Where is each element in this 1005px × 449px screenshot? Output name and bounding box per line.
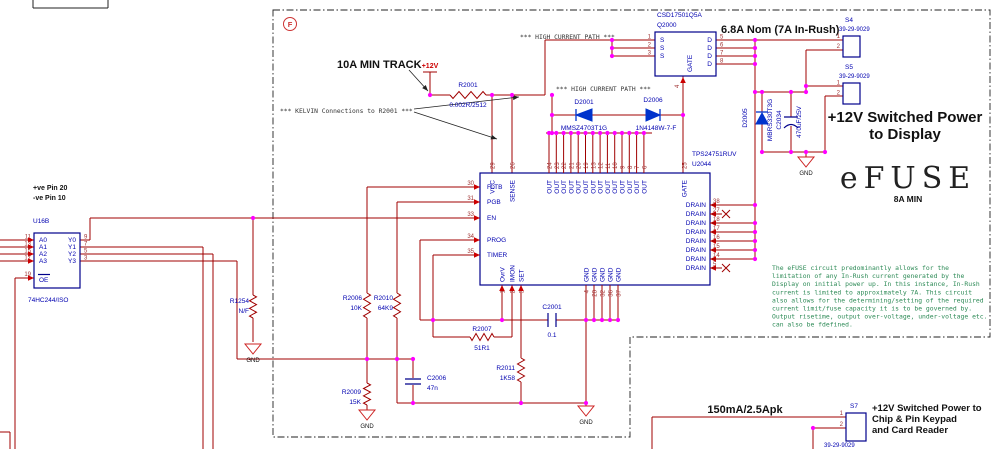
junction-dot bbox=[753, 248, 757, 252]
junction-dot bbox=[610, 38, 614, 42]
track-note: 10A MIN TRACK bbox=[337, 59, 422, 71]
pin-name: OUT bbox=[568, 180, 575, 194]
pin-name: DRAIN bbox=[686, 202, 707, 209]
pin-name: GND bbox=[600, 267, 607, 282]
junction-dot bbox=[591, 131, 595, 135]
pin-number: 11 bbox=[606, 162, 612, 169]
pin-arrow bbox=[28, 275, 34, 281]
pin-number: 23 bbox=[555, 162, 561, 169]
junction-dot bbox=[760, 150, 764, 154]
pin-name: D bbox=[707, 37, 712, 44]
border-fragment-bottom-left bbox=[0, 432, 10, 449]
s4-ref: S4 bbox=[845, 17, 853, 24]
junction-dot bbox=[519, 401, 523, 405]
schematic-canvas: F +ve Pin 20 -ve Pin 10 U16B 74HC244/ISO… bbox=[0, 0, 1005, 449]
c2006-value: 47n bbox=[427, 385, 438, 392]
s4-pin-1: 1 bbox=[837, 34, 841, 40]
r2011-value: 1K58 bbox=[500, 375, 516, 382]
pin-number: 26 bbox=[511, 162, 517, 169]
junction-dot bbox=[804, 84, 808, 88]
pin-name: OE bbox=[39, 277, 49, 284]
no-connect-x bbox=[722, 210, 730, 218]
pin-name: DRAIN bbox=[686, 238, 707, 245]
junction-dot bbox=[428, 93, 432, 97]
junction-dot bbox=[600, 318, 604, 322]
junction-dot bbox=[365, 357, 369, 361]
r2001-body[interactable] bbox=[450, 92, 486, 99]
junction-dot bbox=[500, 318, 504, 322]
s4-part: 39-29-9029 bbox=[839, 27, 870, 33]
pin-name: OUT bbox=[612, 180, 619, 194]
note-line: can also be fdefined. bbox=[772, 321, 853, 329]
pin-arrow bbox=[474, 199, 480, 205]
r2007-body[interactable] bbox=[470, 334, 494, 341]
power-display-title-2: to Display bbox=[869, 126, 941, 143]
junction-dot bbox=[584, 401, 588, 405]
pin-name: OUT bbox=[634, 180, 641, 194]
pin-number: 12 bbox=[599, 162, 605, 169]
pin-number: 30 bbox=[467, 181, 474, 187]
gnd-label: GND bbox=[360, 424, 374, 430]
junction-dot bbox=[431, 318, 435, 322]
s7-pin-2: 2 bbox=[840, 422, 844, 428]
junction-dot bbox=[642, 131, 646, 135]
pin-name: D bbox=[707, 45, 712, 52]
pin-number: 28 bbox=[593, 289, 599, 296]
pin-arrow bbox=[474, 252, 480, 258]
d2005-value: MBRS330T3G bbox=[767, 99, 774, 141]
r2009-ref: R2009 bbox=[342, 389, 362, 396]
r1254-body[interactable] bbox=[250, 295, 257, 318]
pin-name: GND bbox=[608, 267, 615, 282]
pin-arrow bbox=[680, 77, 686, 83]
gnd-symbol bbox=[245, 344, 261, 354]
power-keypad-title-3: and Card Reader bbox=[872, 425, 948, 436]
junction-dot bbox=[804, 90, 808, 94]
pin-name: VCC bbox=[490, 180, 497, 194]
r2009-value: 15K bbox=[349, 399, 361, 406]
pin-number: 13 bbox=[591, 162, 597, 169]
note-line: Output risetime, output over-voltage, un… bbox=[772, 313, 987, 321]
inrush-rating: 6.8A Nom (7A In-Rush) bbox=[721, 24, 840, 36]
c2006-ref: C2006 bbox=[427, 375, 447, 382]
power-keypad-title-1: +12V Switched Power to bbox=[872, 403, 982, 414]
pin-name: S bbox=[660, 37, 665, 44]
note-line: Display on initial power up. In this ins… bbox=[772, 280, 980, 288]
gnd-symbol bbox=[798, 157, 814, 167]
supply-note-neg: -ve Pin 10 bbox=[33, 195, 66, 202]
pin-name: OUT bbox=[583, 180, 590, 194]
pin-name: OUT bbox=[590, 180, 597, 194]
note-line: current is limited to approximately 7A. … bbox=[772, 288, 972, 296]
border-fragment-top-left bbox=[33, 0, 108, 8]
pin-arrow bbox=[474, 184, 480, 190]
pin-name: D bbox=[707, 53, 712, 60]
r1254-ref: R1254 bbox=[230, 298, 250, 305]
pin-name: D bbox=[707, 61, 712, 68]
junction-dot bbox=[490, 93, 494, 97]
pin-number: 19 bbox=[584, 162, 590, 169]
junction-dot bbox=[753, 203, 757, 207]
junction-dot bbox=[605, 131, 609, 135]
c2034-ref: C2034 bbox=[776, 110, 783, 130]
power-keypad-title-2: Chip & Pin Keypad bbox=[872, 414, 957, 425]
efuse-rating: 8A MIN bbox=[894, 194, 923, 204]
pin-arrow bbox=[509, 285, 515, 291]
pin-name: DRAIN bbox=[686, 220, 707, 227]
junction-dot bbox=[584, 318, 588, 322]
connector-s4[interactable] bbox=[843, 36, 860, 57]
r2011-body[interactable] bbox=[518, 358, 525, 382]
junction-dot bbox=[592, 318, 596, 322]
r2001-value: 0.002R/2512 bbox=[449, 102, 487, 109]
s7-pin-1: 1 bbox=[840, 411, 844, 417]
pin-name: OUT bbox=[561, 180, 568, 194]
r2006-body[interactable] bbox=[364, 293, 371, 318]
pin-name: OUT bbox=[576, 180, 583, 194]
junction-dot bbox=[627, 131, 631, 135]
junction-dot bbox=[753, 62, 757, 66]
d2006-diode[interactable] bbox=[646, 109, 660, 121]
gnd-label: GND bbox=[579, 420, 593, 426]
pin-name: OUT bbox=[620, 180, 627, 194]
junction-dot bbox=[681, 113, 685, 117]
u16b-ref: U16B bbox=[33, 218, 49, 225]
r2001-ref: R2001 bbox=[458, 82, 478, 89]
junction-dot bbox=[789, 150, 793, 154]
junction-dot bbox=[753, 90, 757, 94]
junction-dot bbox=[550, 93, 554, 97]
junction-dot bbox=[811, 426, 815, 430]
c2034-value: 470uF/25V bbox=[796, 105, 803, 137]
pin-name: A2 bbox=[39, 251, 47, 258]
pin-number: 36 bbox=[609, 289, 615, 296]
kelvin-note: *** KELVIN Connections to R2001 *** bbox=[280, 108, 413, 115]
junction-dot bbox=[753, 239, 757, 243]
pin-name: GND bbox=[584, 267, 591, 282]
pin-name: A3 bbox=[39, 258, 47, 265]
pin-name: SET bbox=[519, 269, 526, 282]
u2044-ref: U2044 bbox=[692, 161, 712, 168]
junction-dot bbox=[804, 150, 808, 154]
pin-number: 4 bbox=[585, 289, 591, 293]
s4-pin-2: 2 bbox=[837, 44, 841, 50]
junction-dot bbox=[610, 46, 614, 50]
pin-name: OUT bbox=[641, 180, 648, 194]
pin-arrow bbox=[474, 215, 480, 221]
gnd-symbol bbox=[578, 406, 594, 416]
c2006-capacitor[interactable] bbox=[405, 379, 421, 384]
gnd-label: GND bbox=[799, 171, 813, 177]
pin-number: 32 bbox=[601, 289, 607, 296]
q2000-part: CSD17501Q5A bbox=[657, 12, 702, 19]
u2044-part: TPS24751RUV bbox=[692, 151, 737, 158]
pin-name: Y1 bbox=[68, 244, 76, 251]
schematic-page: F +ve Pin 20 -ve Pin 10 U16B 74HC244/ISO… bbox=[0, 0, 1005, 449]
pin-number: 31 bbox=[467, 196, 474, 202]
r2007-value: 51R1 bbox=[474, 345, 490, 352]
note-line: current limit/fuse capacity it is to be … bbox=[772, 305, 972, 313]
plus12v-label: +12V bbox=[422, 63, 439, 70]
pin-number: 34 bbox=[467, 234, 474, 240]
pin-name: DRAIN bbox=[686, 265, 707, 272]
pin-arrow bbox=[499, 285, 505, 291]
r2006-ref: R2006 bbox=[343, 295, 363, 302]
s5-part: 39-29-9029 bbox=[839, 74, 870, 80]
connector-s7[interactable] bbox=[846, 413, 866, 441]
s7-ref: S7 bbox=[850, 403, 858, 410]
pin-name: GATE bbox=[682, 179, 689, 197]
junction-dot bbox=[510, 93, 514, 97]
pin-number: 7 bbox=[635, 165, 641, 169]
junction-dot bbox=[569, 131, 573, 135]
pin-number: 29 bbox=[491, 162, 497, 169]
supply-note-pos: +ve Pin 20 bbox=[33, 185, 68, 192]
pin-name: GND bbox=[592, 267, 599, 282]
no-connect-x bbox=[722, 264, 730, 272]
r2011-ref: R2011 bbox=[496, 365, 515, 372]
junction-dot bbox=[620, 131, 624, 135]
r2010-body[interactable] bbox=[394, 293, 401, 318]
junction-dot bbox=[550, 131, 554, 135]
pin-name: EN bbox=[487, 215, 496, 222]
pin-number: 24 bbox=[548, 162, 554, 169]
pin-name: Y0 bbox=[68, 237, 76, 244]
annotation-arrow bbox=[414, 112, 497, 139]
power-display-title-1: +12V Switched Power bbox=[828, 109, 983, 126]
junction-dot bbox=[608, 318, 612, 322]
pin-number: 35 bbox=[467, 249, 474, 255]
s5-ref: S5 bbox=[845, 64, 853, 71]
high-current-path-note: *** HIGH CURRENT PATH *** bbox=[556, 86, 651, 93]
junction-dot bbox=[753, 46, 757, 50]
pin-name: DRAIN bbox=[686, 247, 707, 254]
junction-dot bbox=[753, 230, 757, 234]
pin-number: 22 bbox=[562, 162, 568, 169]
pin-name: S bbox=[660, 45, 665, 52]
q2000-ref: Q2000 bbox=[657, 22, 677, 29]
junction-dot bbox=[550, 113, 554, 117]
pin-name: SENSE bbox=[510, 179, 517, 202]
r2009-body[interactable] bbox=[364, 383, 371, 405]
pin-name: A1 bbox=[39, 244, 47, 251]
pin-name: OUT bbox=[554, 180, 561, 194]
c2001-capacitor[interactable] bbox=[548, 313, 556, 327]
junction-dot bbox=[789, 90, 793, 94]
junction-dot bbox=[616, 318, 620, 322]
r2006-value: 10K bbox=[350, 305, 362, 312]
pin-number: 4 bbox=[675, 84, 681, 88]
pin-name: OUT bbox=[598, 180, 605, 194]
d2001-ref: D2001 bbox=[574, 99, 594, 106]
pin-name: OUT bbox=[627, 180, 634, 194]
r2010-value: 64K9 bbox=[378, 305, 394, 312]
c2001-ref: C2001 bbox=[542, 304, 562, 311]
r2010-ref: R2010 bbox=[374, 295, 394, 302]
junction-dot bbox=[411, 401, 415, 405]
junction-dot bbox=[562, 131, 566, 135]
gnd-symbol bbox=[359, 410, 375, 420]
pin-arrow bbox=[28, 258, 34, 264]
junction-dot bbox=[753, 221, 757, 225]
note-line: also allows for the determining/setting … bbox=[772, 296, 984, 304]
u16b-part: 74HC244/ISO bbox=[28, 297, 68, 304]
pin-number: 25 bbox=[683, 162, 689, 169]
junction-dot bbox=[635, 131, 639, 135]
high-current-path-note: *** HIGH CURRENT PATH *** bbox=[520, 34, 615, 41]
r2007-ref: R2007 bbox=[472, 326, 492, 333]
r1254-value: N/F bbox=[239, 308, 250, 315]
pin-number: 10 bbox=[613, 162, 619, 169]
f-marker: F bbox=[288, 20, 293, 29]
pin-name: Y2 bbox=[68, 251, 76, 258]
pin-name: OUT bbox=[605, 180, 612, 194]
pin-name: GND bbox=[616, 267, 623, 282]
efuse-note: The eFUSE circuit predominantly allows f… bbox=[772, 264, 987, 329]
pin-name: DRAIN bbox=[686, 229, 707, 236]
pin-name: DRAIN bbox=[686, 256, 707, 263]
junction-dot bbox=[753, 54, 757, 58]
note-line: limitation of any In-Rush current genera… bbox=[772, 272, 965, 280]
junction-dot bbox=[753, 38, 757, 42]
efuse-title: eFUSE bbox=[840, 161, 976, 196]
d2005-ref: D2005 bbox=[742, 108, 749, 128]
junction-dot bbox=[554, 131, 558, 135]
junction-dot bbox=[823, 150, 827, 154]
note-line: The eFUSE circuit predominantly allows f… bbox=[772, 264, 949, 272]
junction-dot bbox=[613, 131, 617, 135]
pin-name: A0 bbox=[39, 237, 47, 244]
junction-dot bbox=[411, 357, 415, 361]
d2006-value: 1N4148W-7-F bbox=[636, 125, 677, 132]
junction-dot bbox=[583, 131, 587, 135]
keypad-rating: 150mA/2.5Apk bbox=[707, 404, 783, 416]
pin-name: PGB bbox=[487, 199, 501, 206]
connector-s5[interactable] bbox=[843, 83, 860, 104]
junction-dot bbox=[576, 131, 580, 135]
pin-arrow bbox=[518, 285, 524, 291]
pin-number: 6 bbox=[642, 165, 648, 169]
pin-number: 37 bbox=[617, 289, 623, 296]
pin-number: 21 bbox=[569, 162, 575, 169]
pin-number: 8 bbox=[628, 165, 634, 169]
pin-name: DRAIN bbox=[686, 211, 707, 218]
junction-dot bbox=[598, 131, 602, 135]
pin-name: OvrV bbox=[500, 267, 507, 282]
c2001-value: 0.1 bbox=[547, 332, 556, 339]
pin-name: GATE bbox=[687, 54, 694, 72]
pin-arrow bbox=[474, 237, 480, 243]
junction-dot bbox=[251, 216, 255, 220]
d2001-zener[interactable] bbox=[576, 109, 592, 121]
pin-name: IMON bbox=[510, 265, 517, 282]
gnd-label: GND bbox=[246, 358, 260, 364]
junction-dot bbox=[760, 90, 764, 94]
s7-part: 39-29-9029 bbox=[824, 443, 855, 449]
junction-dot bbox=[610, 54, 614, 58]
pin-name: PROG bbox=[487, 237, 506, 244]
pin-number: 20 bbox=[577, 162, 583, 169]
pin-name: OUT bbox=[547, 180, 554, 194]
junction-dot bbox=[395, 357, 399, 361]
pin-name: TIMER bbox=[487, 252, 508, 259]
pin-number: 9 bbox=[621, 165, 627, 169]
d2006-ref: D2006 bbox=[643, 97, 663, 104]
pin-name: S bbox=[660, 53, 665, 60]
junction-dot bbox=[753, 257, 757, 261]
pin-name: Y3 bbox=[68, 258, 76, 265]
pin-number: 33 bbox=[467, 212, 474, 218]
